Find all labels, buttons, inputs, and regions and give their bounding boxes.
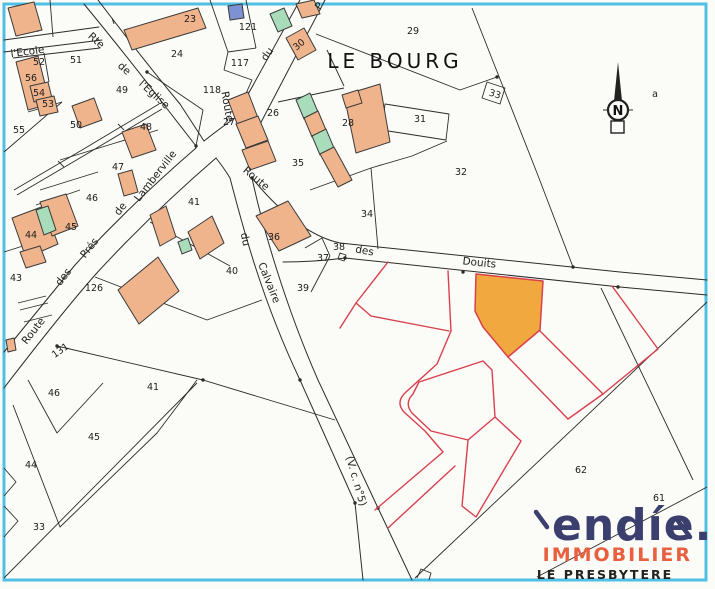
road-labels: l'EcoleRtedel'EgliseRouteduPRoutedesDoui… <box>10 0 497 507</box>
road-label-de: de <box>112 200 130 218</box>
parcel-label-50: 50 <box>70 120 82 131</box>
parcel-labels: 2324121117118293027262831323534363738394… <box>10 14 665 533</box>
north-arrow-icon: N <box>603 62 633 133</box>
logo-tagline: IMMOBILIER <box>543 544 692 566</box>
parcel-label-28: 28 <box>342 118 354 129</box>
parcel-label-41: 41 <box>147 382 159 393</box>
parcel-label-45: 45 <box>65 222 77 233</box>
road-label-douits: Douits <box>462 255 497 270</box>
road-label-route: Route <box>20 315 48 346</box>
road-label-des: des <box>354 244 374 259</box>
parcel-label-117: 117 <box>231 58 249 69</box>
cadastral-map: 33 N LE BOURG LE PRESBYTERE l'EcoleRtede… <box>0 0 715 589</box>
parcel-label-39: 39 <box>297 283 309 294</box>
parcel-label-43: 43 <box>10 273 22 284</box>
parcel-label-35: 35 <box>292 158 304 169</box>
boxed-parcel-label: 33 <box>487 88 502 102</box>
parcel-label-26: 26 <box>267 108 279 119</box>
parcel-label-34: 34 <box>361 209 373 220</box>
parcel-label-a: a <box>652 89 658 100</box>
parcel-label-46: 46 <box>86 193 98 204</box>
parcel-label-44: 44 <box>25 460 37 471</box>
road-label-rte: Rte <box>85 30 106 51</box>
road-label-route: Route <box>240 164 271 193</box>
parcel-label-36: 36 <box>268 232 280 243</box>
parcel-label-54: 54 <box>33 88 45 99</box>
parcel-label-46: 46 <box>48 388 60 399</box>
parcel-label-52: 52 <box>33 57 45 68</box>
logo-accent-left <box>536 512 547 527</box>
parcel-label-62: 62 <box>575 465 587 476</box>
parcel-label-47: 47 <box>112 162 124 173</box>
parcel-label-40: 40 <box>226 266 238 277</box>
north-letter: N <box>613 104 624 119</box>
parcel-label-29: 29 <box>407 26 419 37</box>
parcel-label-55: 55 <box>13 125 25 136</box>
parcel-label-53: 53 <box>42 99 54 110</box>
parcel-label-48: 48 <box>140 122 152 133</box>
parcel-label-126: 126 <box>85 283 103 294</box>
parcel-label-41: 41 <box>188 197 200 208</box>
parcel-label-121: 121 <box>239 22 257 33</box>
parcel-label-23: 23 <box>184 14 196 25</box>
road-label-de: de <box>115 60 133 78</box>
parcel-label-49: 49 <box>116 85 128 96</box>
parcel-label-44: 44 <box>25 230 37 241</box>
area-label-presbytere: LE PRESBYTERE <box>537 567 673 582</box>
endie-logo: endíe. IMMOBILIER <box>536 500 712 566</box>
parcel-label-27: 27 <box>223 117 235 128</box>
parcel-label-38: 38 <box>333 242 345 253</box>
parcel-label-51: 51 <box>70 55 82 66</box>
road-label-du: du <box>238 232 253 248</box>
parcel-label-32: 32 <box>455 167 467 178</box>
road-label-calvaire: Calvaire <box>255 261 282 305</box>
area-label-le-bourg: LE BOURG <box>327 49 462 73</box>
highlighted-lot[interactable] <box>475 274 543 357</box>
boxed-parcel-33: 33 <box>482 82 505 104</box>
road-label-lamberville: Lamberville <box>132 148 179 204</box>
blue-building <box>228 4 244 20</box>
parcel-label-31: 31 <box>414 114 426 125</box>
road-label-pr-s: Prés <box>78 236 101 261</box>
parcel-label-24: 24 <box>171 49 183 60</box>
parcel-label-33: 33 <box>33 522 45 533</box>
parcel-label-131: 131 <box>50 341 71 360</box>
parcel-label-56: 56 <box>25 73 37 84</box>
parcel-label-45: 45 <box>88 432 100 443</box>
map-drawing: 33 N LE BOURG LE PRESBYTERE l'EcoleRtede… <box>0 0 715 589</box>
parcel-label-37: 37 <box>317 253 329 264</box>
parcel-label-118: 118 <box>203 85 221 96</box>
